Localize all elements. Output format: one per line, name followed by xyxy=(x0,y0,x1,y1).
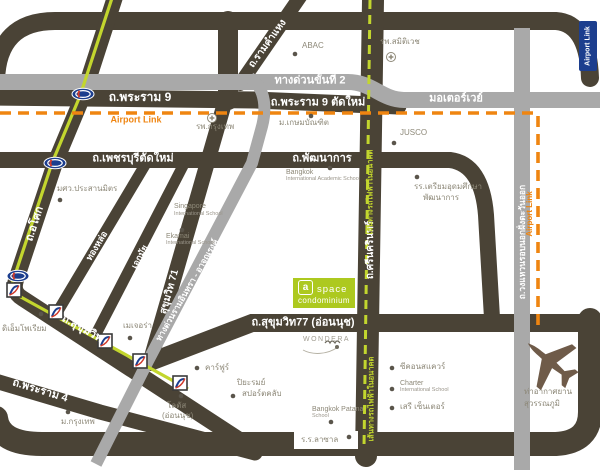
airport-link-label-vertical: Airport Link xyxy=(526,191,534,236)
road-label-expressway2: ทางด่วนขั้นที่ 2 xyxy=(274,76,345,87)
airport-link-badge: Airport Link xyxy=(579,21,597,71)
road-label-rama9-new: ถ.พระราม 9 ตัดใหม่ xyxy=(271,98,366,109)
poi-triam-udom: รร.เตรียมอุดมศึกษา xyxy=(414,183,482,191)
map-graphics xyxy=(0,0,600,470)
condo-location-map: ถ.พระราม 9 ถ.พระราม 9 ตัดใหม่ ทางด่วนขั้… xyxy=(0,0,600,470)
poi-charter: Charter xyxy=(400,380,423,387)
poi-swu-prasarnmit: มศว.ประสานมิตร xyxy=(57,185,117,193)
poi-bangkok-university: ม.กรุงเทพ xyxy=(61,418,95,426)
poi-ekamai-intl: Ekamai xyxy=(166,233,189,240)
poi-dot xyxy=(415,175,420,180)
poi-dot xyxy=(39,312,44,317)
mrt-station-icon xyxy=(7,270,29,282)
mrt-station-icon xyxy=(72,88,94,100)
poi-bangkok-patana-sub: School xyxy=(312,414,329,420)
road-label-sukhumvit77: ถ.สุขุมวิท77 (อ่อนนุช) xyxy=(252,318,355,329)
poi-piyarom: ปิยะรมย์ xyxy=(237,379,265,387)
poi-major: เมเจอร่า xyxy=(123,322,152,330)
future-rail-label: เส้นทางรถไฟฟ้าในอนาคต xyxy=(366,150,374,235)
a-space-logo: a space condominium xyxy=(293,278,355,308)
poi-samitivej: รพ.สมิติเวช xyxy=(380,38,420,46)
road-label-rama9: ถ.พระราม 9 xyxy=(109,91,172,103)
poi-lotus-sub: (อ่อนนุช) xyxy=(162,412,193,420)
poi-suvarnabhumi-sub: สุวรรณภูมิ xyxy=(524,400,560,408)
poi-bangkok-patana: Bangkok Patana xyxy=(312,406,363,413)
poi-seacon: ซีคอนสแควร์ xyxy=(400,363,445,371)
poi-seri-center: เสรี เซ็นเตอร์ xyxy=(400,403,445,411)
future-rail-label: เส้นทางรถไฟฟ้าในอนาคต xyxy=(367,357,375,442)
road-label-motorway: มอเตอร์เวย์ xyxy=(429,94,483,105)
airport-link-line xyxy=(0,113,538,331)
poi-suvarnabhumi: ท่าอากาศยาน xyxy=(524,388,572,396)
road-label-phatthanakan: ถ.พัฒนาการ xyxy=(292,154,351,165)
poi-lasalle: ร.ร.ลาซาล xyxy=(301,436,338,444)
poi-bkk-intl-academic-sub: International Academic School xyxy=(286,177,360,183)
poi-dot xyxy=(390,387,395,392)
poi-bkk-intl-academic: Bangkok xyxy=(286,169,313,176)
poi-dot xyxy=(390,366,395,371)
poi-dot xyxy=(347,435,352,440)
airport-link-badge-label: Airport Link xyxy=(585,26,592,66)
poi-dot xyxy=(66,410,71,415)
poi-dot xyxy=(180,228,185,233)
bts-station-icon xyxy=(7,283,21,297)
poi-dot xyxy=(179,394,184,399)
poi-singapore-school: Singapore xyxy=(174,203,206,210)
poi-bangkok-hospital: รพ.กรุงเทพ xyxy=(196,123,234,131)
poi-lotus: โลตัส xyxy=(167,402,186,410)
poi-kasem-bundit: ม.เกษมบัณฑิต xyxy=(279,119,329,127)
poi-dot xyxy=(390,406,395,411)
poi-dot xyxy=(58,198,63,203)
poi-singapore-school-sub: International School xyxy=(174,212,223,218)
poi-charter-sub: International School xyxy=(400,388,449,394)
poi-piyarom-sub: สปอร์ตคลับ xyxy=(242,390,282,398)
a-space-logo-badge: a xyxy=(298,280,313,295)
poi-abac: ABAC xyxy=(302,42,324,50)
poi-dot xyxy=(128,336,133,341)
poi-dot xyxy=(293,52,298,57)
poi-dot xyxy=(195,366,200,371)
wondera-label: WONDERA xyxy=(303,336,350,343)
poi-dot xyxy=(328,166,333,171)
poi-dot xyxy=(231,394,236,399)
airport-link-label-horizontal: Airport Link xyxy=(111,116,162,125)
poi-jusco: JUSCO xyxy=(400,129,427,137)
hospital-icon xyxy=(387,53,396,62)
poi-carrefour: คาร์ฟูร์ xyxy=(205,364,229,372)
poi-ekamai-intl-sub: International School xyxy=(166,241,215,247)
poi-triam-udom-sub: พัฒนาการ xyxy=(423,194,459,202)
a-space-logo-sub: condominium xyxy=(298,296,355,305)
bts-station-icon xyxy=(133,354,147,368)
mrt-station-icon xyxy=(44,157,66,169)
poi-dot xyxy=(392,141,397,146)
road-label-phetchaburi: ถ.เพชรบุรีตัดใหม่ xyxy=(92,154,173,165)
poi-emporium: ดิเอ็มโพเรียม xyxy=(2,325,47,333)
bts-station-icon xyxy=(173,376,187,390)
bts-station-icon xyxy=(49,305,63,319)
a-space-logo-name: space xyxy=(317,284,347,295)
poi-dot xyxy=(329,420,334,425)
